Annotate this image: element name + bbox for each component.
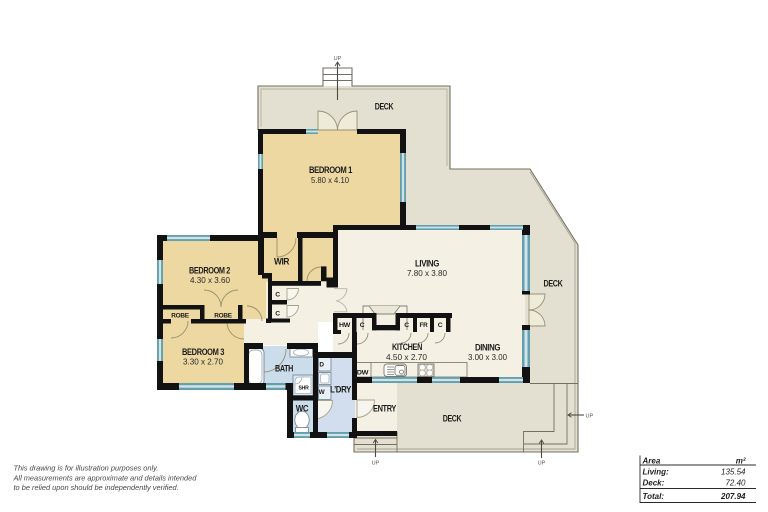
svg-text:4.30 x 3.60: 4.30 x 3.60 — [190, 275, 230, 285]
svg-text:ENTRY: ENTRY — [373, 404, 396, 414]
svg-text:WIR: WIR — [274, 257, 290, 267]
svg-text:SHR: SHR — [299, 386, 309, 392]
svg-text:C: C — [438, 322, 443, 329]
svg-text:ROBE: ROBE — [214, 313, 232, 320]
svg-text:KITCHEN: KITCHEN — [392, 342, 423, 352]
svg-text:C: C — [275, 292, 280, 299]
svg-text:UP: UP — [372, 461, 380, 467]
svg-text:DECK: DECK — [443, 414, 462, 424]
svg-text:FR: FR — [420, 322, 428, 329]
svg-text:5.80 x 4.10: 5.80 x 4.10 — [311, 175, 349, 185]
svg-text:ROBE: ROBE — [171, 313, 189, 320]
svg-text:HW: HW — [339, 322, 351, 329]
svg-text:C: C — [404, 322, 409, 329]
svg-text:L’DRY: L’DRY — [330, 385, 351, 395]
svg-text:Deck:: Deck: — [643, 479, 665, 488]
svg-text:This drawing is for illustrati: This drawing is for illustration purpose… — [14, 464, 159, 473]
svg-text:UP: UP — [334, 56, 342, 62]
svg-text:BEDROOM 2: BEDROOM 2 — [189, 266, 230, 276]
svg-text:LIVING: LIVING — [415, 259, 439, 269]
svg-text:BATH: BATH — [275, 364, 293, 374]
svg-text:207.94: 207.94 — [720, 492, 746, 501]
svg-text:7.80 x 3.80: 7.80 x 3.80 — [407, 268, 447, 278]
svg-text:Area: Area — [642, 457, 661, 466]
svg-text:WC: WC — [296, 404, 309, 414]
svg-text:3.30 x 2.70: 3.30 x 2.70 — [183, 356, 223, 366]
svg-text:DECK: DECK — [544, 279, 564, 289]
svg-text:UP: UP — [538, 461, 546, 467]
svg-text:m²: m² — [736, 457, 746, 466]
svg-text:to be relied upon should be in: to be relied upon should be independentl… — [14, 483, 179, 492]
svg-text:Total:: Total: — [643, 492, 665, 501]
svg-text:BEDROOM 1: BEDROOM 1 — [309, 165, 352, 175]
svg-text:C: C — [275, 311, 280, 318]
svg-text:C: C — [360, 322, 365, 329]
svg-text:All measurements are approxima: All measurements are approximate and det… — [13, 474, 198, 483]
svg-text:3.00 x 3.00: 3.00 x 3.00 — [468, 352, 507, 362]
svg-text:4.50 x 2.70: 4.50 x 2.70 — [386, 352, 427, 362]
svg-text:UP: UP — [586, 414, 594, 420]
svg-text:DECK: DECK — [375, 102, 394, 112]
svg-text:Living:: Living: — [643, 468, 670, 477]
svg-text:D: D — [319, 362, 324, 369]
svg-text:DW: DW — [357, 370, 369, 377]
svg-text:135.54: 135.54 — [721, 468, 746, 477]
svg-text:72.40: 72.40 — [725, 479, 746, 488]
